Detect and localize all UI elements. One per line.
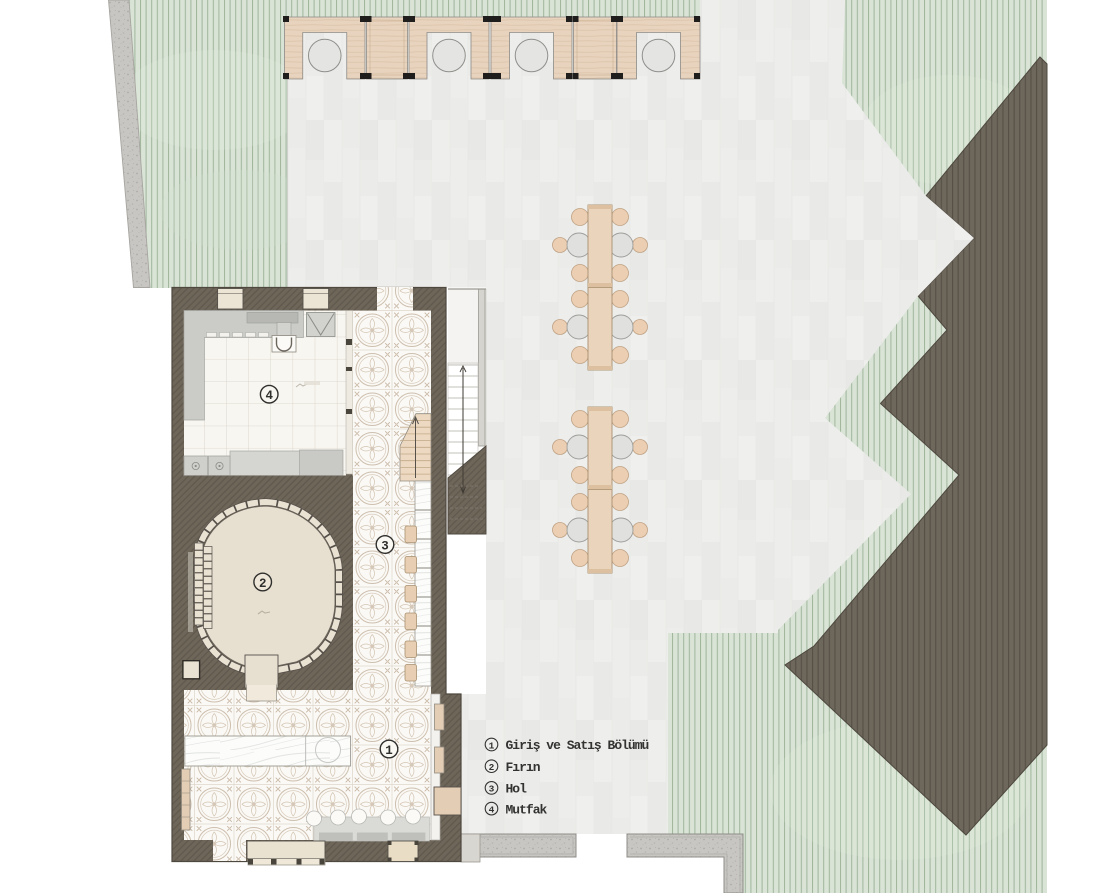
- svg-text:Hol: Hol: [506, 782, 528, 797]
- svg-text:1: 1: [489, 740, 495, 751]
- svg-text:2: 2: [259, 577, 267, 591]
- svg-text:Mutfak: Mutfak: [506, 802, 548, 817]
- svg-text:2: 2: [489, 762, 495, 773]
- svg-text:4: 4: [489, 804, 495, 815]
- svg-text:Fırın: Fırın: [506, 760, 541, 775]
- svg-text:4: 4: [265, 389, 273, 403]
- svg-text:1: 1: [385, 744, 393, 758]
- svg-text:3: 3: [381, 539, 389, 553]
- svg-text:3: 3: [489, 784, 495, 795]
- svg-text:Giriş ve Satış Bölümü: Giriş ve Satış Bölümü: [506, 738, 649, 753]
